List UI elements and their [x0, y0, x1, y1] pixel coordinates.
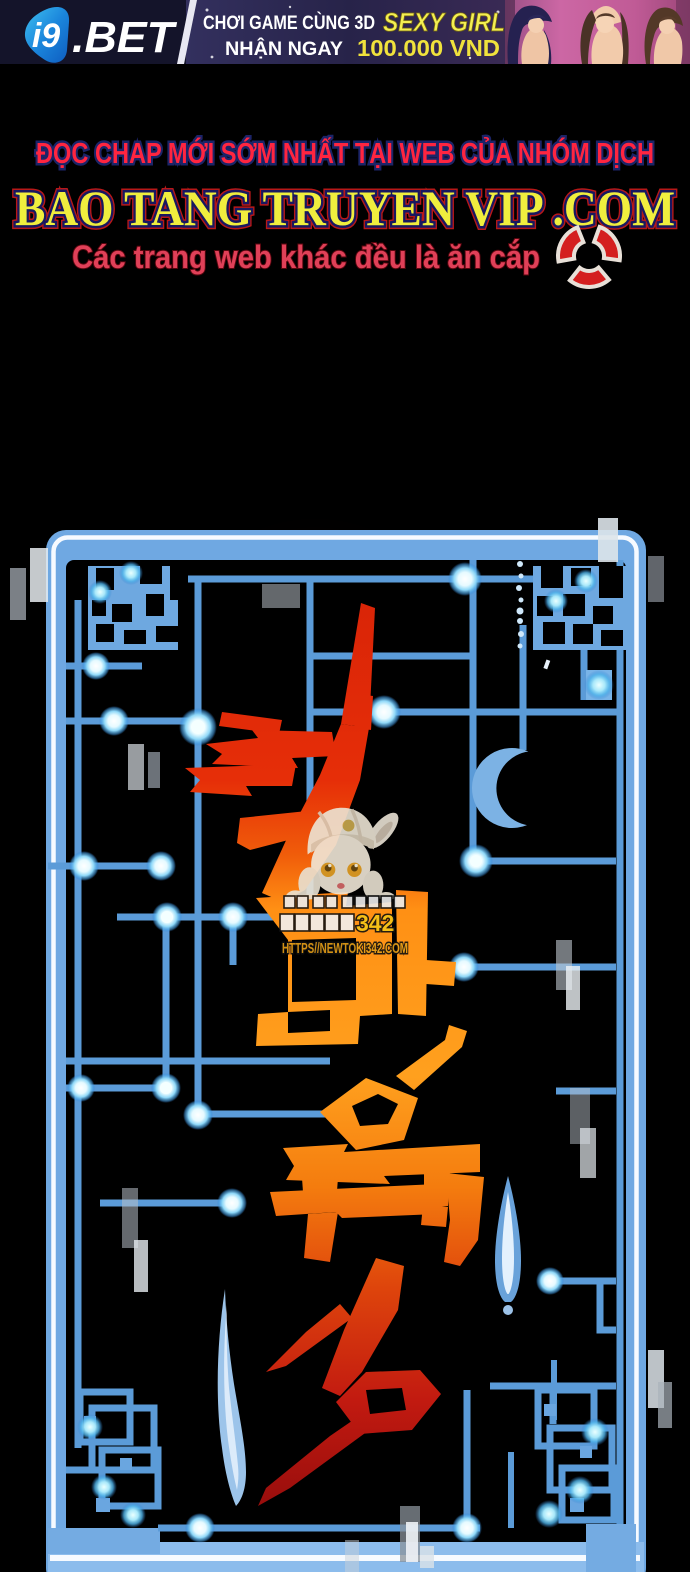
svg-text:HTTPS//NEWTOKI342.COM: HTTPS//NEWTOKI342.COM — [282, 940, 408, 957]
svg-text:i9: i9 — [32, 17, 60, 55]
svg-text:342: 342 — [356, 910, 394, 936]
svg-text:CHƠI GAME CÙNG 3D: CHƠI GAME CÙNG 3D — [203, 12, 375, 34]
svg-text:Các trang web khác đều là ăn c: Các trang web khác đều là ăn cắp — [72, 239, 540, 275]
svg-text:.BET: .BET — [72, 13, 177, 62]
svg-text:NHẬN NGAY: NHẬN NGAY — [225, 38, 343, 60]
svg-text:SEXY GIRL: SEXY GIRL — [383, 7, 505, 37]
svg-text:ĐỌC CHAP MỚI SỚM NHẤT TẠI WEB: ĐỌC CHAP MỚI SỚM NHẤT TẠI WEB CỦA NHÓM D… — [36, 136, 654, 170]
svg-text:100.000 VND: 100.000 VND — [357, 35, 500, 61]
